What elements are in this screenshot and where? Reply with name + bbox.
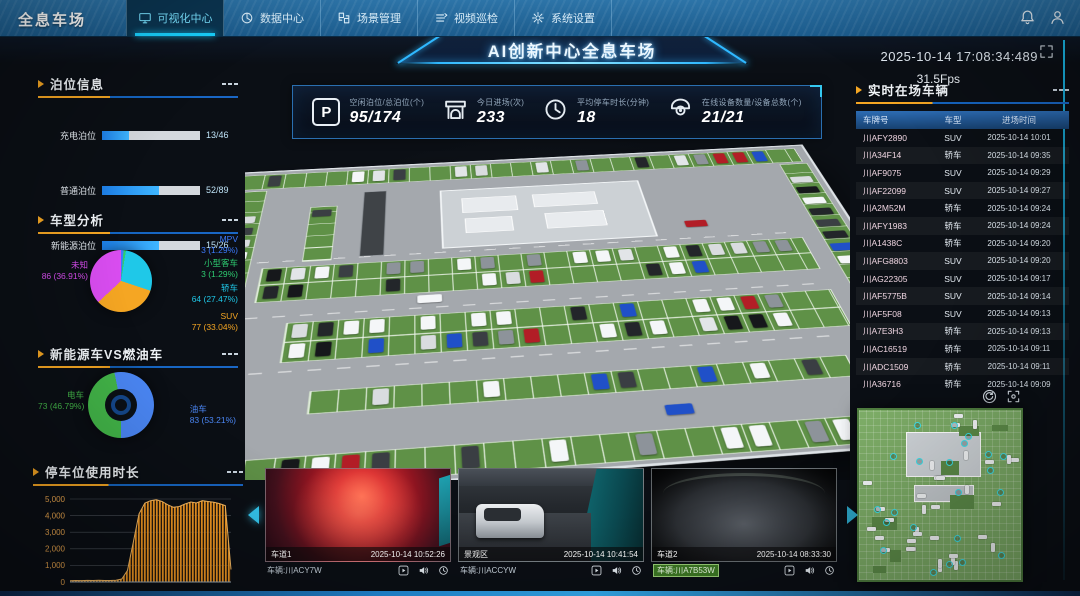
section-title: 新能源车VS燃油车 — [50, 344, 163, 363]
history-icon — [824, 565, 835, 576]
cell-type: 轿车 — [937, 235, 969, 253]
section-arrow-icon — [38, 80, 44, 88]
tab-label: 数据中心 — [260, 10, 304, 26]
play-icon[interactable] — [398, 565, 409, 576]
history-icon[interactable] — [824, 565, 835, 576]
table-row[interactable]: 川AFG8803SUV2025-10-14 09:20 — [856, 252, 1069, 270]
history-icon[interactable] — [438, 565, 449, 576]
cell-type: 轿车 — [937, 375, 969, 393]
energy-vs-fuel-panel: 新能源车VS燃油车 电车73 (46.79%)油车83 (53.21%) — [38, 344, 238, 464]
section-header: 车型分析 — [38, 210, 238, 229]
cell-type: 轿车 — [937, 323, 969, 341]
section-title: 停车位使用时长 — [45, 462, 140, 481]
cell-time: 2025-10-14 09:11 — [969, 340, 1069, 358]
kpi-item-0: P空闲泊位/总泊位(个)95/174 — [312, 97, 424, 127]
camera-toolbar: 车辆:川ACCYW — [458, 562, 644, 579]
page-title: AI创新中心全息车场 — [488, 38, 657, 62]
cell-time: 2025-10-14 09:35 — [969, 147, 1069, 165]
cell-time: 2025-10-14 09:11 — [969, 358, 1069, 376]
svg-text:2,000: 2,000 — [45, 545, 66, 554]
cell-type: SUV — [937, 252, 969, 270]
table-row[interactable]: 川A7E3H3轿车2025-10-14 09:13 — [856, 323, 1069, 341]
section-arrow-icon — [33, 468, 39, 476]
camera-card-2: 车道22025-10-14 08:33:30车辆:川A7B53W — [651, 468, 837, 579]
svg-text:1,000: 1,000 — [45, 561, 66, 570]
parking-icon: P — [312, 98, 340, 126]
monitor-icon — [138, 11, 152, 25]
section-underline — [38, 366, 238, 368]
kpi-value: 18 — [577, 109, 649, 127]
camera-icon — [668, 97, 693, 122]
camera-toolbar: 车辆:川A7B53W — [651, 562, 837, 579]
focus-icon — [1006, 389, 1021, 404]
speaker-icon — [418, 565, 429, 576]
data-icon — [240, 11, 254, 25]
cell-time: 2025-10-14 09:29 — [969, 164, 1069, 182]
kpi-item-1: 今日进场(次)233 — [443, 97, 524, 127]
section-dashes — [227, 471, 243, 473]
banner-glow-line — [396, 62, 748, 64]
table-row[interactable]: 川AG22305SUV2025-10-14 09:17 — [856, 270, 1069, 288]
camera-timestamp: 2025-10-14 08:33:30 — [757, 550, 831, 559]
top-nav: 全息车场 可视化中心数据中心场景管理视频巡检系统设置 — [0, 0, 1080, 37]
section-title: 车型分析 — [50, 210, 104, 229]
table-row[interactable]: 川AF5F08SUV2025-10-14 09:13 — [856, 305, 1069, 323]
svg-text:4,000: 4,000 — [45, 511, 66, 520]
kpi-value: 95/174 — [349, 109, 424, 127]
camera-name: 车道2 — [657, 549, 677, 560]
tab-label: 视频巡检 — [454, 10, 498, 26]
camera-carousel: 车道12025-10-14 10:52:26车辆:川ACY7W景观区2025-1… — [265, 468, 843, 579]
cell-type: 轿车 — [937, 358, 969, 376]
usage-duration-chart: 5,0004,0003,0002,0001,0000 — [33, 490, 238, 596]
section-underline — [38, 96, 238, 98]
kpi-label: 平均停车时长(分钟) — [577, 97, 649, 108]
camera-caption: 景观区2025-10-14 10:41:54 — [459, 547, 643, 561]
svg-text:5,000: 5,000 — [45, 495, 66, 504]
camera-name: 车道1 — [271, 549, 291, 560]
table-row[interactable]: 川AFY1983轿车2025-10-14 09:24 — [856, 217, 1069, 235]
cell-type: SUV — [937, 287, 969, 305]
section-header: 新能源车VS燃油车 — [38, 344, 238, 363]
play-icon[interactable] — [591, 565, 602, 576]
camera-feed-2[interactable]: 车道22025-10-14 08:33:30 — [651, 468, 837, 562]
berth-bar — [102, 131, 200, 140]
section-dashes — [222, 353, 238, 355]
tab-data-center[interactable]: 数据中心 — [224, 0, 321, 36]
screen-bezel-glow — [0, 591, 1080, 596]
history-icon — [438, 565, 449, 576]
cell-type: 轿车 — [937, 217, 969, 235]
donut-hub — [105, 389, 137, 421]
cell-plate: 川ADC1509 — [856, 358, 937, 376]
camera-feed-0[interactable]: 车道12025-10-14 10:52:26 — [265, 468, 451, 562]
clock-icon — [543, 97, 568, 122]
camera-caption: 车道12025-10-14 10:52:26 — [266, 547, 450, 561]
camera-name: 景观区 — [464, 549, 488, 560]
parking-dashboard: 全息车场 可视化中心数据中心场景管理视频巡检系统设置 AI创新中心全息车场 20… — [0, 0, 1080, 596]
play-icon — [398, 565, 409, 576]
history-icon[interactable] — [631, 565, 642, 576]
donut-label-1: 油车83 (53.21%) — [190, 404, 236, 426]
bell-icon[interactable] — [1019, 9, 1036, 26]
camera-vehicle-label: 车辆:川ACY7W — [267, 565, 322, 576]
camera-caption: 车道22025-10-14 08:33:30 — [652, 547, 836, 561]
pie-label-1: 小型客车3 (1.29%) — [201, 258, 238, 280]
camera-feed-1[interactable]: 景观区2025-10-14 10:41:54 — [458, 468, 644, 562]
table-row[interactable]: 川AFY2890SUV2025-10-14 10:01 — [856, 129, 1069, 147]
cell-time: 2025-10-14 09:24 — [969, 217, 1069, 235]
history-icon — [631, 565, 642, 576]
camera-icon — [668, 97, 693, 127]
table-row[interactable]: 川A1438C轿车2025-10-14 09:20 — [856, 235, 1069, 253]
camera-vehicle-label: 车辆:川A7B53W — [653, 564, 719, 577]
cell-time: 2025-10-14 09:20 — [969, 235, 1069, 253]
table-row[interactable]: 川AC16519轿车2025-10-14 09:11 — [856, 340, 1069, 358]
section-header: 停车位使用时长 — [33, 462, 243, 481]
kpi-item-3: 在线设备数量/设备总数(个)21/21 — [668, 97, 802, 127]
minimap[interactable] — [857, 408, 1023, 582]
table-row[interactable]: 川AF22099SUV2025-10-14 09:27 — [856, 182, 1069, 200]
carousel-prev-icon[interactable] — [248, 506, 259, 524]
section-dashes — [222, 219, 238, 221]
table-row[interactable]: 川A2M52M轿车2025-10-14 09:24 — [856, 199, 1069, 217]
cell-time: 2025-10-14 09:13 — [969, 323, 1069, 341]
vehicle-type-pie-chart — [90, 250, 152, 312]
column-header: 车型 — [937, 111, 969, 129]
column-header: 车牌号 — [856, 111, 937, 129]
cell-plate: 川AF5F08 — [856, 305, 937, 323]
camera-timestamp: 2025-10-14 10:52:26 — [371, 550, 445, 559]
tab-label: 系统设置 — [551, 10, 595, 26]
cell-type: SUV — [937, 129, 969, 147]
cell-plate: 川A36716 — [856, 375, 937, 393]
kpi-value: 21/21 — [702, 109, 802, 127]
minimap-tools — [982, 389, 1021, 404]
cell-plate: 川AF9075 — [856, 164, 937, 182]
parking-3d-view[interactable] — [245, 128, 850, 480]
gear-icon — [531, 11, 545, 25]
live-vehicles-table: 车牌号车型进场时间川AFY2890SUV2025-10-14 10:01川A34… — [856, 111, 1069, 393]
section-header: 实时在场车辆 — [856, 80, 1069, 99]
cell-plate: 川A1438C — [856, 235, 937, 253]
cell-time: 2025-10-14 09:24 — [969, 199, 1069, 217]
cell-time: 2025-10-14 09:17 — [969, 270, 1069, 288]
cell-type: 轿车 — [937, 147, 969, 165]
carousel-next-icon[interactable] — [847, 506, 858, 524]
pie-label-2: 轿车64 (27.47%) — [192, 283, 238, 305]
cell-plate: 川A7E3H3 — [856, 323, 937, 341]
berth-row-1: 普通泊位52/89 — [38, 183, 238, 197]
play-icon — [784, 565, 795, 576]
cell-plate: 川AF22099 — [856, 182, 937, 200]
berth-bar — [102, 186, 200, 195]
pie-label-4: 未知86 (36.91%) — [38, 260, 88, 282]
clock-icon — [543, 97, 568, 127]
gate-icon — [443, 97, 468, 122]
cell-plate: 川A34F14 — [856, 147, 937, 165]
cell-type: SUV — [937, 182, 969, 200]
play-icon — [591, 565, 602, 576]
nav-tabs: 可视化中心数据中心场景管理视频巡检系统设置 — [126, 0, 612, 36]
parking-3d-plane — [245, 144, 850, 480]
svg-text:0: 0 — [61, 578, 66, 587]
berth-label: 充电泊位 — [38, 129, 96, 142]
cell-plate: 川AFY2890 — [856, 129, 937, 147]
focus-icon[interactable] — [1006, 389, 1021, 404]
cell-type: 轿车 — [937, 340, 969, 358]
cell-type: SUV — [937, 270, 969, 288]
page-title-banner: AI创新中心全息车场 — [396, 36, 748, 63]
play-icon[interactable] — [784, 565, 795, 576]
donut-label-0: 电车73 (46.79%) — [38, 390, 84, 412]
section-underline — [33, 484, 243, 486]
scene-icon — [337, 11, 351, 25]
app-logo: 全息车场 — [18, 9, 86, 30]
section-title: 泊位信息 — [50, 74, 104, 93]
cell-plate: 川AF5775B — [856, 287, 937, 305]
refresh-icon[interactable] — [982, 389, 997, 404]
speaker-icon — [611, 565, 622, 576]
cell-time: 2025-10-14 09:13 — [969, 305, 1069, 323]
table-row[interactable]: 川AF5775BSUV2025-10-14 09:14 — [856, 287, 1069, 305]
kpi-label: 空闲泊位/总泊位(个) — [349, 97, 424, 108]
camera-card-1: 景观区2025-10-14 10:41:54车辆:川ACCYW — [458, 468, 644, 579]
user-icon[interactable] — [1049, 9, 1066, 26]
kpi-label: 在线设备数量/设备总数(个) — [702, 97, 802, 108]
usage-duration-panel: 停车位使用时长 5,0004,0003,0002,0001,0000 — [33, 462, 243, 596]
speaker-icon[interactable] — [611, 565, 622, 576]
kpi-bar: P空闲泊位/总泊位(个)95/174今日进场(次)233平均停车时长(分钟)18… — [292, 85, 822, 139]
usage-duration-chart-wrap: 5,0004,0003,0002,0001,0000 — [33, 490, 243, 596]
table-row[interactable]: 川A34F14轿车2025-10-14 09:35 — [856, 147, 1069, 165]
cell-plate: 川AFG8803 — [856, 252, 937, 270]
camera-toolbar: 车辆:川ACY7W — [265, 562, 451, 579]
patrol-icon — [434, 11, 448, 25]
pie-label-3: SUV77 (33.04%) — [192, 311, 238, 333]
cell-time: 2025-10-14 09:14 — [969, 287, 1069, 305]
cell-plate: 川AFY1983 — [856, 217, 937, 235]
cell-time: 2025-10-14 09:27 — [969, 182, 1069, 200]
camera-cards: 车道12025-10-14 10:52:26车辆:川ACY7W景观区2025-1… — [265, 468, 843, 579]
tab-label: 场景管理 — [357, 10, 401, 26]
kpi-value: 233 — [477, 109, 524, 127]
column-header: 进场时间 — [969, 111, 1069, 129]
cell-type: 轿车 — [937, 199, 969, 217]
speaker-icon[interactable] — [804, 565, 815, 576]
user-icon — [1049, 9, 1066, 26]
tab-system-settings[interactable]: 系统设置 — [515, 0, 612, 36]
section-arrow-icon — [856, 86, 862, 94]
kpi-label: 今日进场(次) — [477, 97, 524, 108]
camera-timestamp: 2025-10-14 10:41:54 — [564, 550, 638, 559]
berth-value: 13/46 — [206, 130, 238, 140]
berth-row-0: 充电泊位13/46 — [38, 128, 238, 142]
expand-icon[interactable] — [1039, 44, 1054, 64]
vehicle-type-panel: 车型分析 MPV3 (1.29%)小型客车3 (1.29%)轿车64 (27.4… — [38, 210, 238, 342]
tab-video-patrol[interactable]: 视频巡检 — [418, 0, 515, 36]
berth-label: 普通泊位 — [38, 184, 96, 197]
datetime: 2025-10-14 17:08:34:489 — [880, 49, 1038, 64]
section-arrow-icon — [38, 350, 44, 358]
section-underline — [856, 102, 1069, 104]
svg-text:3,000: 3,000 — [45, 528, 66, 537]
table-header-row: 车牌号车型进场时间 — [856, 111, 1069, 129]
cell-time: 2025-10-14 10:01 — [969, 129, 1069, 147]
bell-icon — [1019, 9, 1036, 26]
table-row[interactable]: 川AF9075SUV2025-10-14 09:29 — [856, 164, 1069, 182]
refresh-icon — [982, 389, 997, 404]
speaker-icon — [804, 565, 815, 576]
nav-icons — [1019, 9, 1066, 26]
live-vehicles-panel: 实时在场车辆 车牌号车型进场时间川AFY2890SUV2025-10-14 10… — [856, 80, 1069, 393]
kpi-item-2: 平均停车时长(分钟)18 — [543, 97, 649, 127]
section-dashes — [1053, 89, 1069, 91]
tab-visualization-center[interactable]: 可视化中心 — [126, 0, 224, 36]
pie-label-0: MPV3 (1.29%) — [201, 234, 238, 256]
fps-counter: 31.5Fps — [917, 72, 960, 86]
energy-vs-fuel-donut-chart — [88, 372, 154, 438]
section-arrow-icon — [38, 216, 44, 224]
speaker-icon[interactable] — [418, 565, 429, 576]
cell-time: 2025-10-14 09:20 — [969, 252, 1069, 270]
tab-label: 可视化中心 — [158, 10, 213, 26]
cell-plate: 川A2M52M — [856, 199, 937, 217]
section-dashes — [222, 83, 238, 85]
camera-vehicle-label: 车辆:川ACCYW — [460, 565, 516, 576]
table-row[interactable]: 川ADC1509轿车2025-10-14 09:11 — [856, 358, 1069, 376]
camera-card-0: 车道12025-10-14 10:52:26车辆:川ACY7W — [265, 468, 451, 579]
cell-plate: 川AC16519 — [856, 340, 937, 358]
berth-value: 52/89 — [206, 185, 238, 195]
cell-plate: 川AG22305 — [856, 270, 937, 288]
table-row[interactable]: 川A36716轿车2025-10-14 09:09 — [856, 375, 1069, 393]
expand-icon — [1039, 44, 1054, 59]
section-header: 泊位信息 — [38, 74, 238, 93]
tab-scene-management[interactable]: 场景管理 — [321, 0, 418, 36]
cell-type: SUV — [937, 305, 969, 323]
cell-type: SUV — [937, 164, 969, 182]
gate-icon — [443, 97, 468, 127]
